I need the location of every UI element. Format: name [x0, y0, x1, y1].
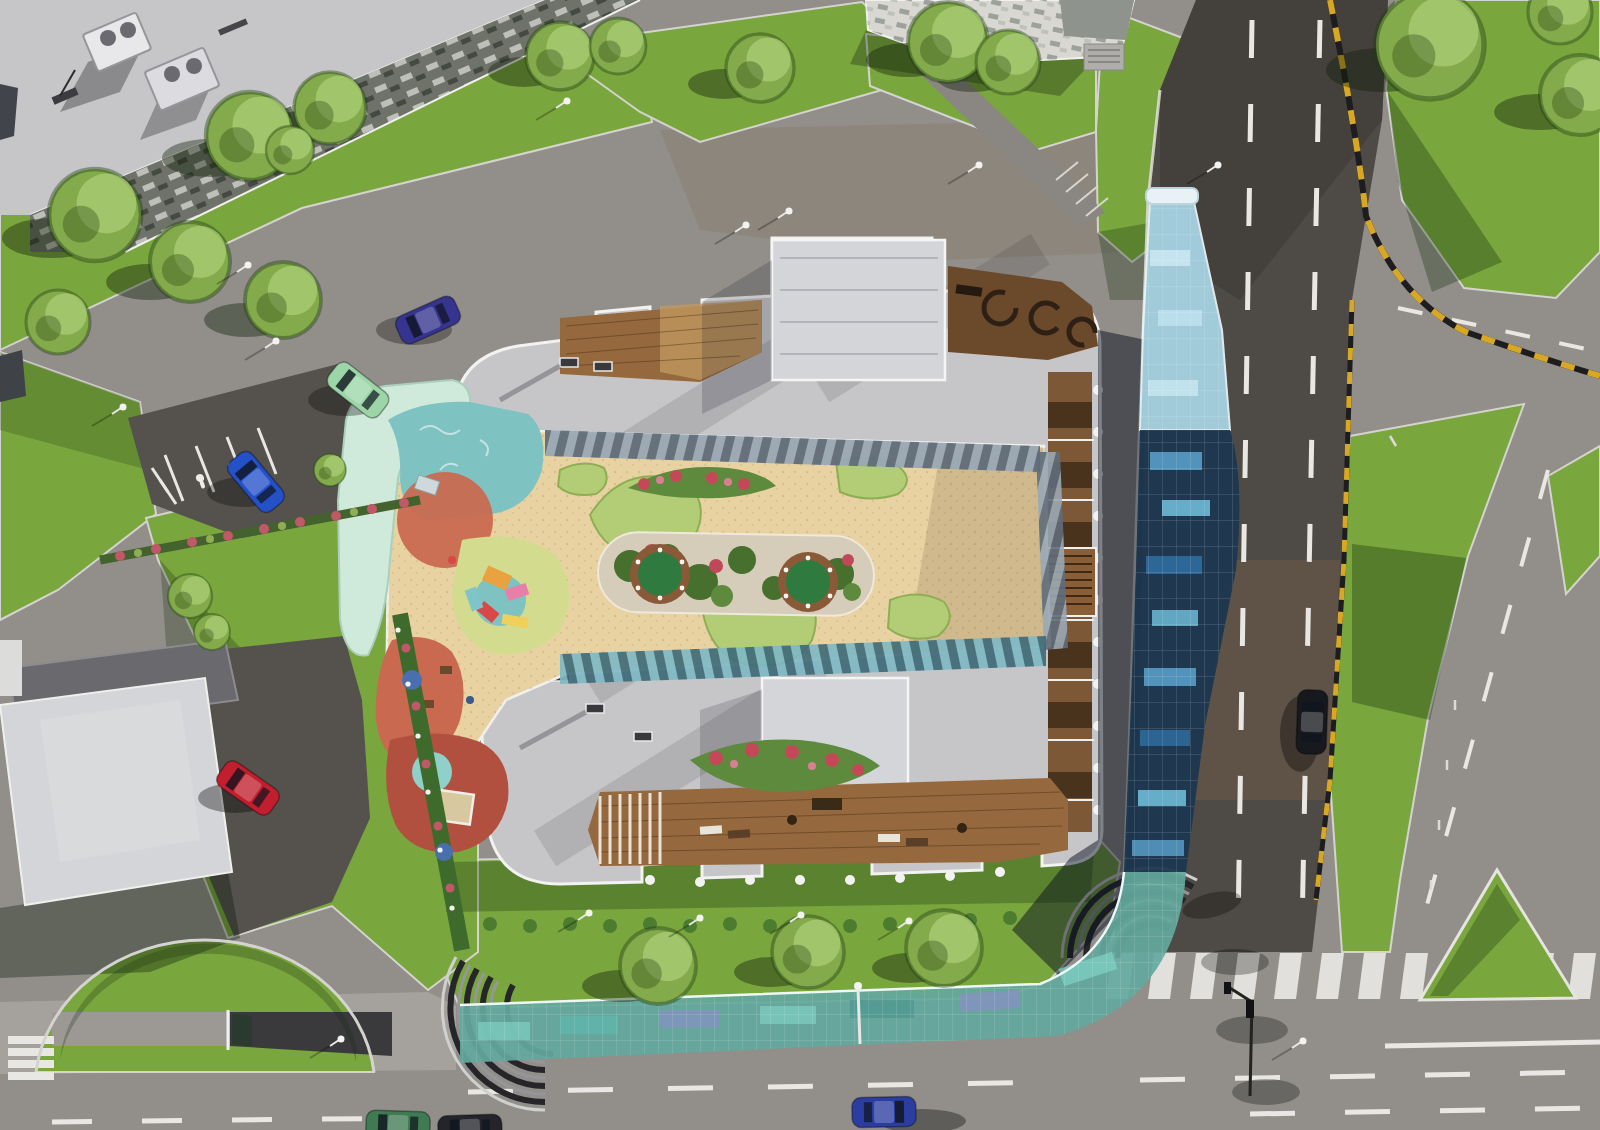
round-planter: [630, 544, 690, 604]
scene-canvas: [0, 0, 1600, 1130]
canopy-head-frame: [1146, 188, 1198, 204]
car-edge-green: [365, 1110, 430, 1130]
aerial-render: [0, 0, 1600, 1130]
round-planter: [778, 552, 838, 612]
building-c-annex: [0, 640, 22, 696]
roof-edge-scrap: [0, 350, 26, 402]
car-edge-dark: [437, 1114, 502, 1130]
roof-block-top: [772, 240, 945, 380]
car-sedan-black: [1296, 689, 1328, 754]
building-bottom-left: [0, 640, 240, 978]
building-b-dark-wing: [1060, 0, 1134, 40]
building-b-stairs: [1084, 44, 1124, 70]
car-sedan-royal-blue: [852, 1096, 917, 1127]
central-garden-bed: [597, 532, 874, 617]
deck-pergola: [600, 792, 660, 864]
